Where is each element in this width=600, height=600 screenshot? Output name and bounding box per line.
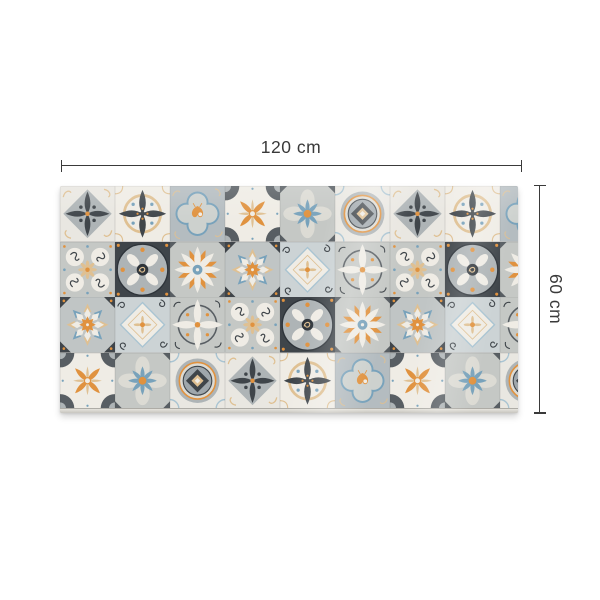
product-dimension-image: 120 cm 60 cm (0, 0, 600, 600)
petal-ring-tile (445, 186, 500, 242)
target-medallion-tile (335, 186, 390, 242)
ring-medallion-tile (280, 297, 335, 353)
width-dimension-tick-left-icon (61, 160, 63, 172)
compass-star-tile (390, 186, 445, 242)
petal-ring-tile (280, 353, 335, 409)
compass-star-tile (60, 186, 115, 242)
compass-star-tile (225, 353, 280, 409)
blue-daisy-tile (115, 353, 170, 409)
blue-daisy-tile (280, 186, 335, 242)
height-dimension-tick-bottom-icon (534, 412, 546, 414)
geo-star-tile (225, 242, 280, 298)
petal-circle-tile (335, 242, 390, 298)
geo-star-tile (390, 297, 445, 353)
diamond-tile (280, 242, 335, 298)
width-dimension-tick-right-icon (521, 160, 523, 172)
blue-daisy-tile (445, 353, 500, 409)
corner-fan-tile (390, 353, 445, 409)
height-dimension-label: 60 cm (545, 185, 566, 413)
height-dimension-line (539, 185, 540, 413)
ring-medallion-tile (115, 242, 170, 298)
quatrefoil-tile (500, 186, 518, 242)
diamond-tile (445, 297, 500, 353)
star-flower-tile (500, 242, 518, 298)
petal-circle-tile (170, 297, 225, 353)
width-dimension-line (61, 165, 521, 166)
width-dimension-label: 120 cm (61, 137, 521, 158)
corner-fan-tile (60, 353, 115, 409)
quatrefoil-tile (170, 186, 225, 242)
star-flower-tile (335, 297, 390, 353)
rug-tile-grid (60, 186, 518, 408)
diamond-tile (115, 297, 170, 353)
petal-ring-tile (115, 186, 170, 242)
scroll-circles-tile (390, 242, 445, 298)
rug-bottom-edge (60, 408, 518, 413)
scroll-circles-tile (60, 242, 115, 298)
scroll-circles-tile (225, 297, 280, 353)
petal-circle-tile (500, 297, 518, 353)
height-dimension-tick-top-icon (534, 185, 546, 187)
target-medallion-tile (500, 353, 518, 409)
corner-fan-tile (225, 186, 280, 242)
target-medallion-tile (170, 353, 225, 409)
quatrefoil-tile (335, 353, 390, 409)
geo-star-tile (60, 297, 115, 353)
ring-medallion-tile (445, 242, 500, 298)
rug-image (60, 186, 518, 413)
star-flower-tile (170, 242, 225, 298)
